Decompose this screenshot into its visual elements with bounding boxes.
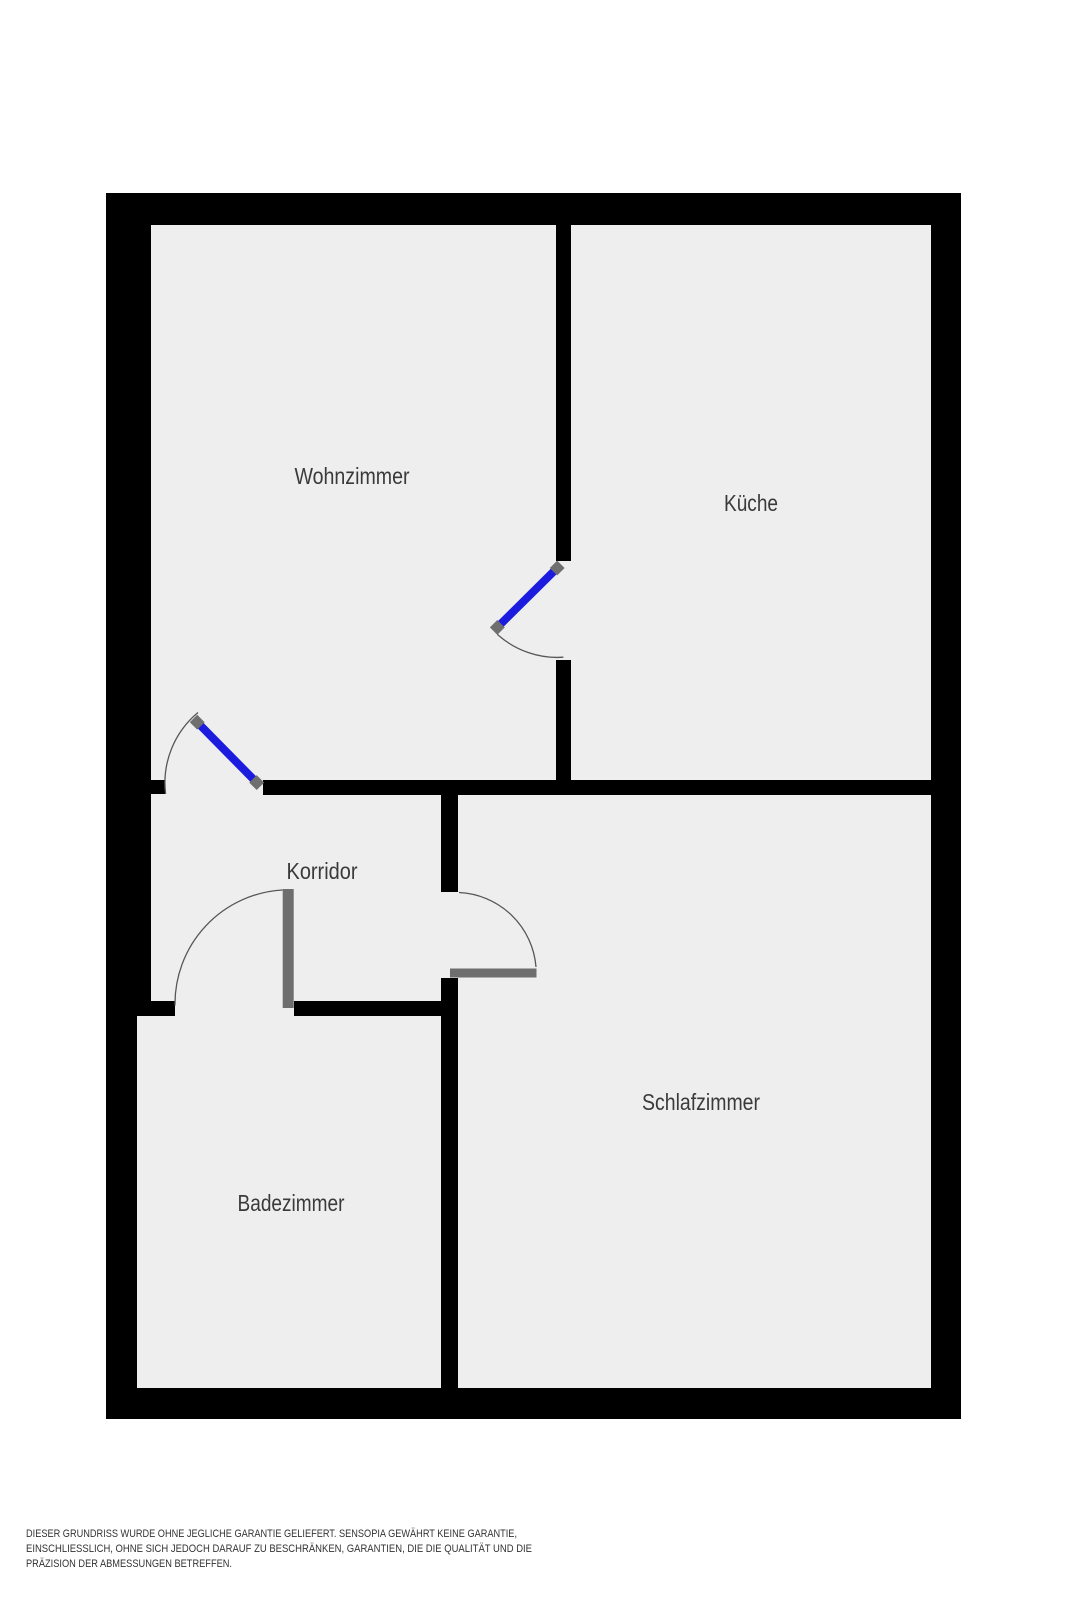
svg-text:Schlafzimmer: Schlafzimmer	[642, 1089, 760, 1115]
svg-text:DIESER GRUNDRISS WURDE OHNE JE: DIESER GRUNDRISS WURDE OHNE JEGLICHE GAR…	[26, 1528, 517, 1540]
svg-text:Wohnzimmer: Wohnzimmer	[295, 463, 410, 489]
svg-text:Korridor: Korridor	[287, 858, 358, 884]
svg-text:Küche: Küche	[724, 490, 778, 516]
svg-text:PRÄZISION DER ABMESSUNGEN BETR: PRÄZISION DER ABMESSUNGEN BETREFFEN.	[26, 1558, 232, 1570]
svg-text:Badezimmer: Badezimmer	[238, 1190, 345, 1216]
svg-text:EINSCHLIESSLICH, OHNE SICH JED: EINSCHLIESSLICH, OHNE SICH JEDOCH DARAUF…	[26, 1543, 532, 1555]
